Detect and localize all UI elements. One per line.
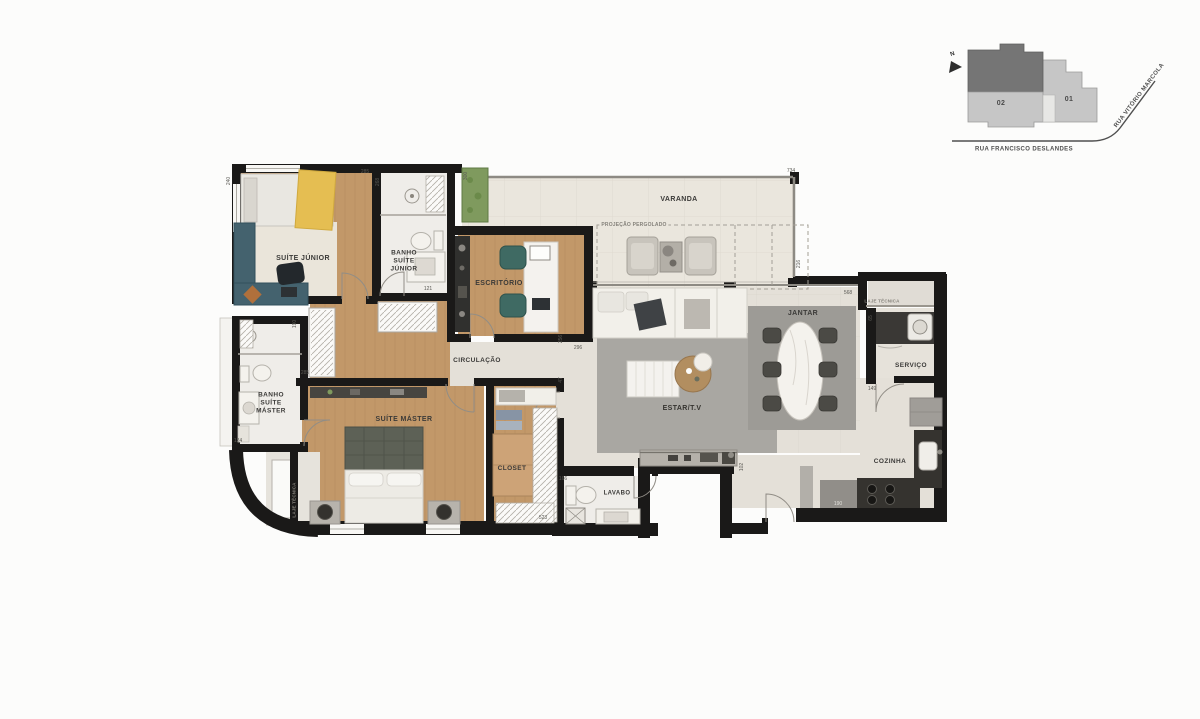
dimension-label: 285	[361, 169, 369, 175]
site-plan	[949, 44, 1155, 141]
pillow	[349, 473, 383, 486]
dimension-label: 256	[558, 335, 564, 343]
dimension-label: 65	[868, 315, 874, 321]
office-chair	[500, 294, 526, 317]
dimension-label: 240	[226, 177, 232, 185]
dresser	[310, 387, 427, 398]
kitchen-mat	[800, 466, 813, 510]
folded-clothes	[496, 421, 522, 430]
kitchen-sink	[919, 442, 937, 470]
yellow-throw	[295, 170, 336, 230]
burner	[886, 485, 895, 494]
floor-plan-page: SUÍTE JÚNIOR BANHO SUÍTE JÚNIOR ESCRITÓR…	[0, 0, 1200, 719]
laptop	[532, 298, 550, 310]
servico-fixtures	[876, 312, 934, 348]
dining-chair	[819, 362, 837, 377]
room-label-suite-junior: SUÍTE JÚNIOR	[276, 255, 330, 263]
north-arrow-icon	[949, 61, 962, 73]
outside-ledge	[220, 318, 233, 446]
building-02-lower-shape	[968, 92, 1043, 127]
island-counter	[640, 450, 737, 466]
toilet	[411, 233, 431, 250]
dimension-label: 523	[539, 515, 547, 521]
shower-shelf	[426, 176, 444, 212]
room-label-suite-master: SUÍTE MÁSTER	[376, 416, 433, 424]
varanda-furniture	[627, 237, 716, 275]
dining-chair	[819, 328, 837, 343]
label-projecao-pergolado: PROJEÇÃO PERGOLADO	[599, 222, 668, 228]
room-label-banho-suite-junior: BANHO SUÍTE JÚNIOR	[381, 249, 427, 272]
dining-chair	[819, 396, 837, 411]
dimension-label: 190	[834, 501, 842, 507]
laptop	[281, 287, 297, 297]
dining-chair	[763, 396, 781, 411]
building-02-upper-shape	[968, 44, 1043, 92]
dimension-label: 121	[424, 286, 432, 292]
dark-throw	[634, 298, 667, 330]
dimension-label: 268	[375, 178, 381, 186]
building-02-label: 02	[997, 100, 1005, 108]
toilet	[253, 365, 271, 381]
room-label-closet: CLOSET	[498, 465, 527, 473]
desk-chair	[276, 261, 306, 286]
dimension-label: 102	[739, 463, 745, 471]
sofa-pad	[684, 299, 710, 329]
pillow	[387, 473, 421, 486]
label-laje-tecnica-left: LAJE TÉCNICA	[291, 482, 296, 517]
printer	[530, 246, 550, 260]
room-label-circulacao: CIRCULAÇÃO	[453, 357, 501, 365]
street-label-francisco-deslandes: RUA FRANCISCO DESLANDES	[975, 146, 1073, 153]
burner	[886, 496, 895, 505]
dimension-label: 190	[292, 320, 298, 328]
coffee-table-small	[694, 353, 712, 371]
label-laje-tecnica-right: LAJE TÉCNICA	[864, 298, 899, 303]
dimension-label: 47	[558, 377, 564, 383]
dining-chair	[763, 362, 781, 377]
dimension-label: 296	[574, 345, 582, 351]
room-label-escritorio: ESCRITÓRIO	[475, 280, 523, 288]
office-chair	[500, 246, 526, 269]
room-label-cozinha: COZINHA	[874, 458, 906, 466]
room-label-jantar: JANTAR	[788, 310, 818, 318]
dimension-label: 149	[868, 386, 876, 392]
room-label-lavabo: LAVABO	[604, 490, 631, 497]
room-label-varanda: VARANDA	[660, 196, 697, 204]
jantar-furniture	[763, 322, 837, 420]
folded-clothes	[496, 410, 522, 420]
dimension-label: 285	[301, 370, 309, 376]
dimension-label: 166	[559, 476, 567, 482]
dimension-label: 568	[844, 290, 852, 296]
dining-table	[777, 322, 823, 420]
burner	[868, 485, 877, 494]
building-01-label: 01	[1065, 96, 1073, 104]
dining-chair	[763, 328, 781, 343]
floor-plan-drawing	[0, 0, 1200, 719]
room-label-estar-tv: ESTAR/T.V	[663, 405, 702, 413]
dimension-label: 734	[787, 168, 795, 174]
room-label-servico: SERVIÇO	[895, 362, 927, 370]
pillow	[244, 178, 257, 222]
dimension-label: 300	[463, 172, 469, 180]
tv-console	[627, 361, 679, 397]
room-label-banho-suite-master: BANHO SUÍTE MÁSTER	[249, 391, 293, 414]
burner	[868, 496, 877, 505]
island-sink	[700, 453, 718, 462]
dimension-label: 216	[796, 260, 802, 268]
dimension-label: 124	[234, 438, 242, 444]
toilet	[576, 487, 596, 504]
